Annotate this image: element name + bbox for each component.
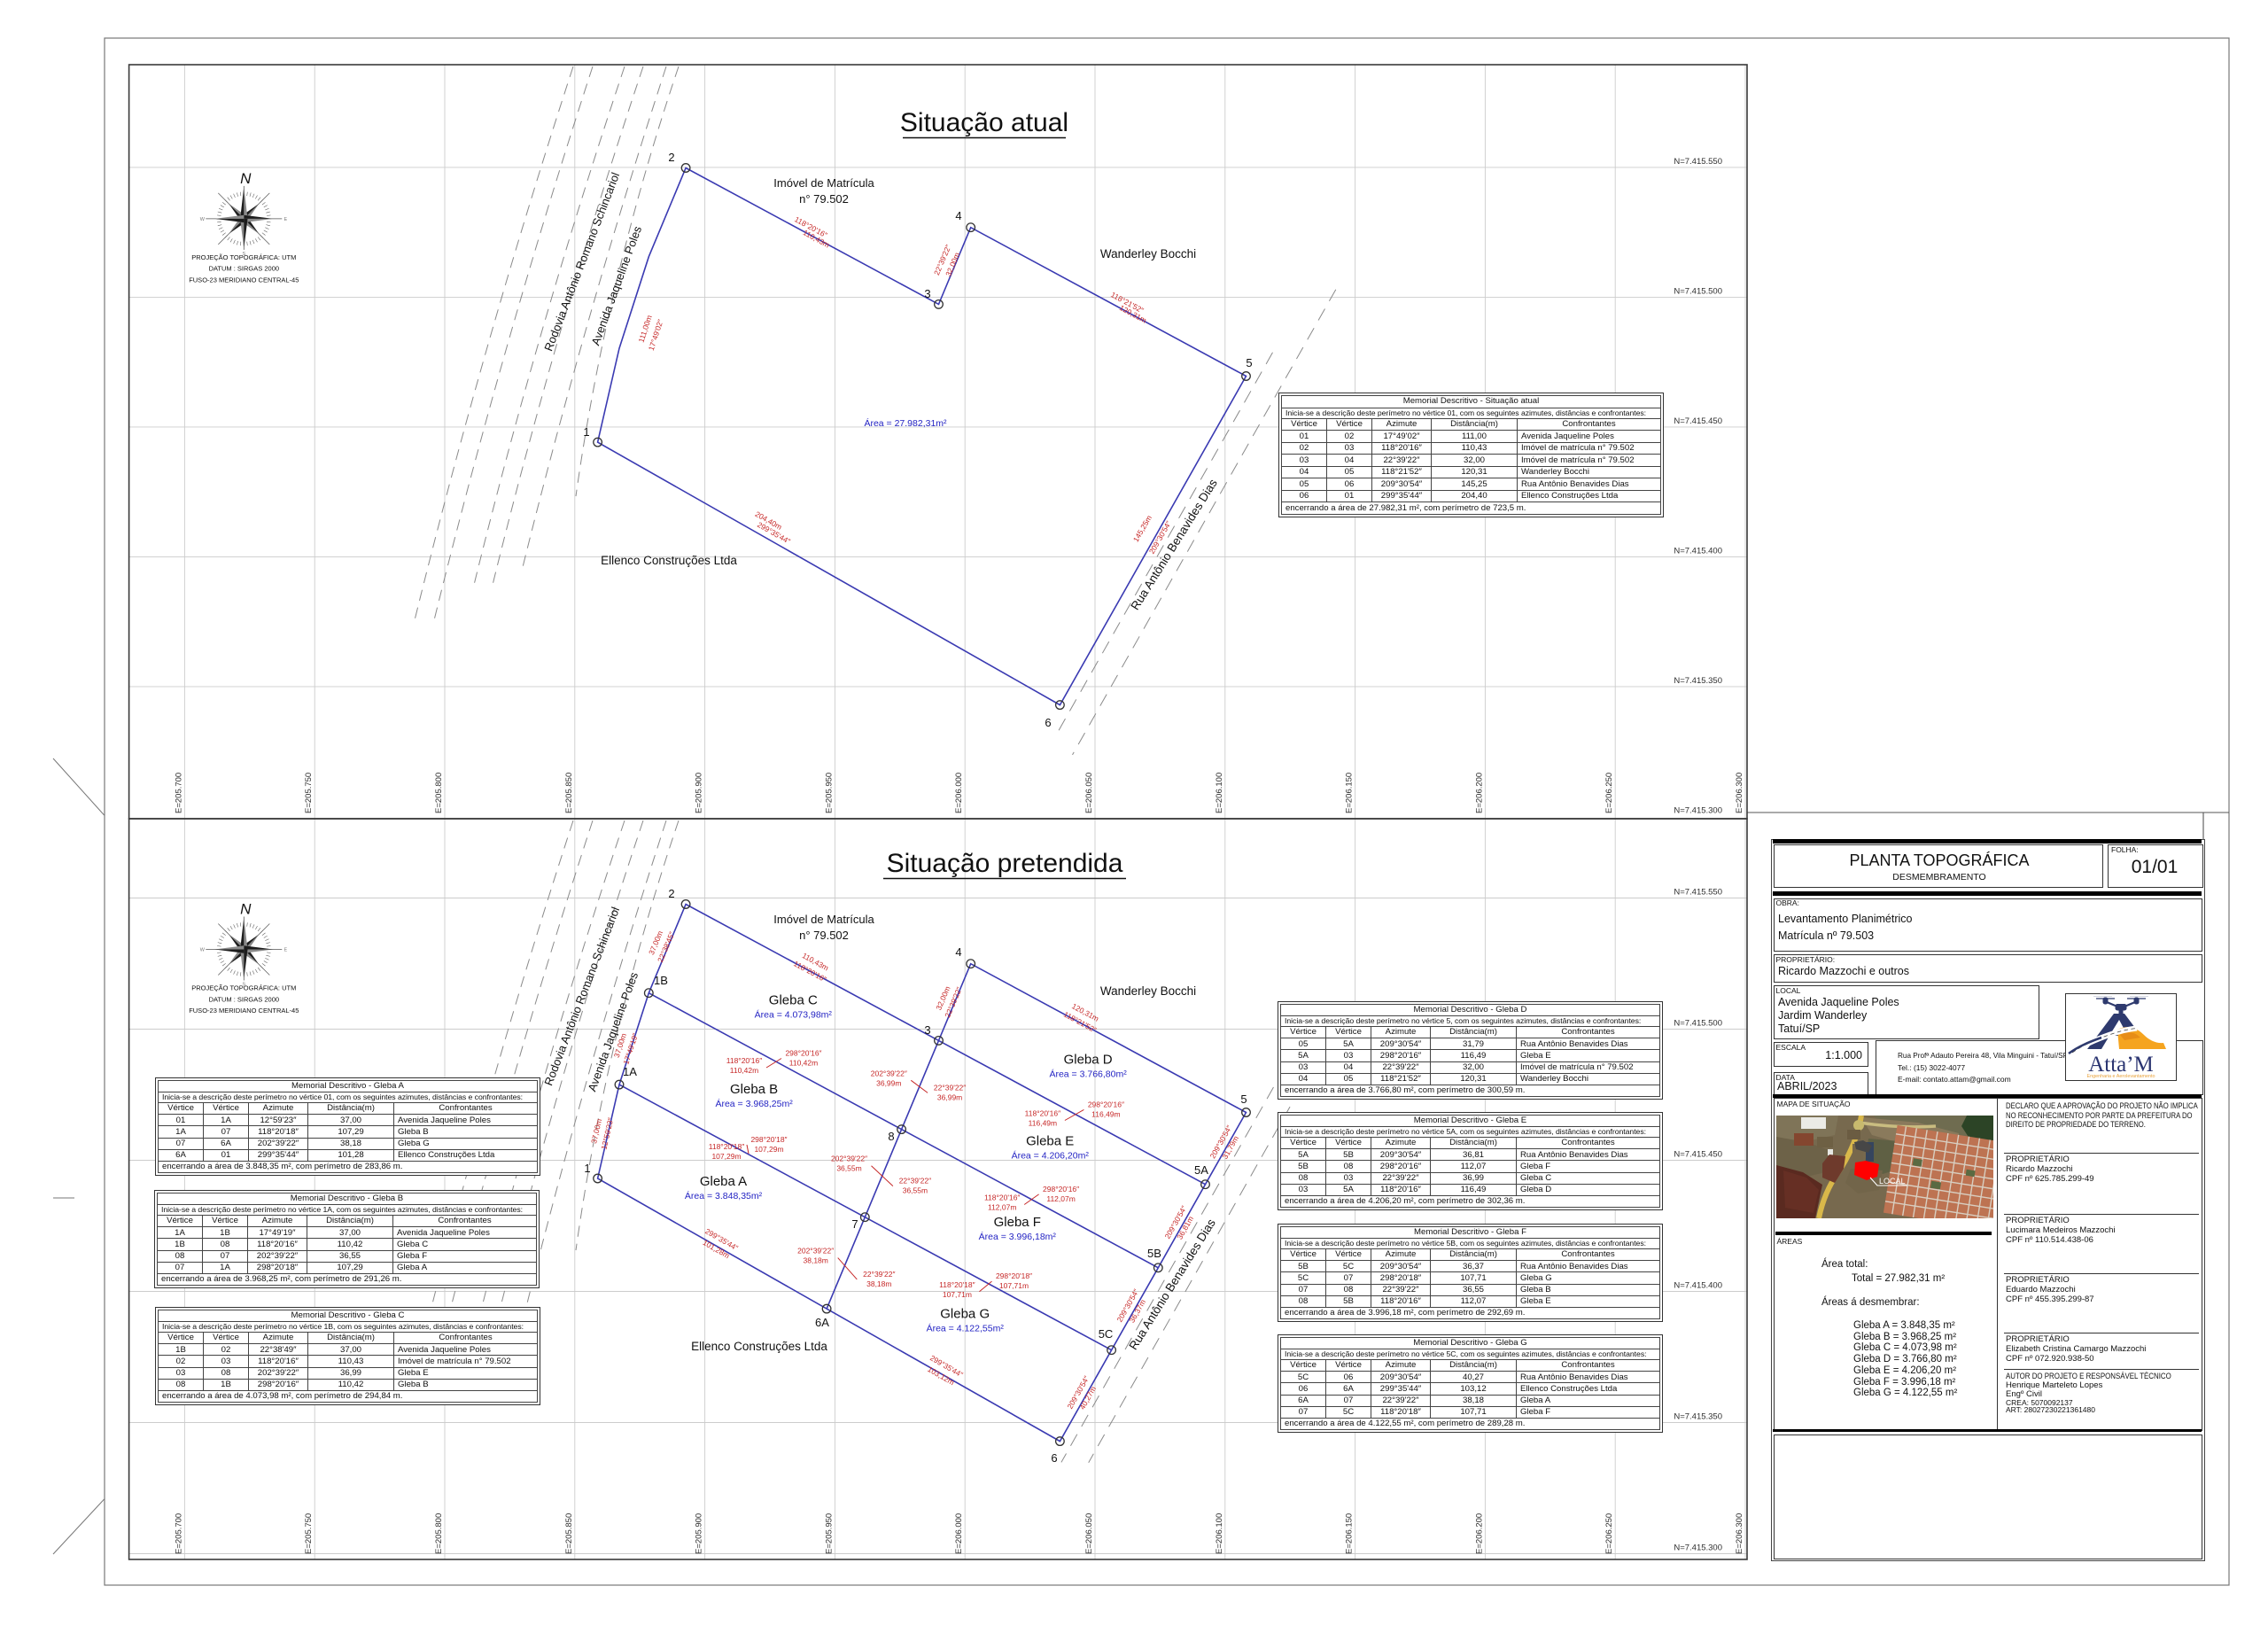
svg-text:118°20'16″: 118°20'16″ <box>1025 1109 1061 1118</box>
svg-text:N=7.415.550: N=7.415.550 <box>1674 157 1722 167</box>
svg-text:N=7.415.350: N=7.415.350 <box>1674 676 1722 686</box>
svg-text:22°39'22″: 22°39'22″ <box>863 1270 895 1279</box>
svg-text:22°39'22″: 22°39'22″ <box>934 1083 966 1092</box>
svg-text:Área = 4.206,20m²: Área = 4.206,20m² <box>1012 1149 1090 1161</box>
svg-text:116,49m: 116,49m <box>1029 1119 1057 1128</box>
svg-text:E=206.050: E=206.050 <box>1084 1513 1094 1554</box>
svg-text:1A: 1A <box>623 1065 637 1078</box>
svg-text:N=7.415.400: N=7.415.400 <box>1674 1281 1722 1291</box>
svg-text:118°20'16″: 118°20'16″ <box>726 1056 763 1065</box>
svg-text:E=206.300: E=206.300 <box>1735 773 1744 813</box>
svg-text:E=205.750: E=205.750 <box>304 773 314 813</box>
svg-text:Rodovia Antônio Romano Schinca: Rodovia Antônio Romano Schincariol <box>541 905 622 1087</box>
svg-text:118°20'16″: 118°20'16″ <box>984 1193 1021 1202</box>
svg-text:E=206.050: E=206.050 <box>1084 773 1094 813</box>
svg-text:36,55m: 36,55m <box>836 1164 861 1173</box>
svg-text:3: 3 <box>924 287 930 300</box>
svg-text:DATUM : SIRGAS 2000: DATUM : SIRGAS 2000 <box>209 995 279 1003</box>
svg-text:W: W <box>200 217 206 222</box>
svg-text:PROJEÇÃO TOPOGRÁFICA: UTM: PROJEÇÃO TOPOGRÁFICA: UTM <box>191 984 296 992</box>
svg-text:38,18m: 38,18m <box>804 1256 828 1265</box>
svg-text:22°39'22″: 22°39'22″ <box>899 1177 931 1186</box>
svg-text:DATUM : SIRGAS 2000: DATUM : SIRGAS 2000 <box>209 265 279 273</box>
svg-text:4: 4 <box>955 945 961 959</box>
svg-text:N=7.415.500: N=7.415.500 <box>1674 1019 1722 1029</box>
svg-text:145,25m: 145,25m <box>1131 514 1153 544</box>
svg-text:Gleba A: Gleba A <box>700 1174 747 1189</box>
svg-text:Engenharia e Aerolevantamento: Engenharia e Aerolevantamento <box>2086 1074 2155 1079</box>
svg-text:E=205.950: E=205.950 <box>824 773 834 813</box>
svg-text:Imóvel de Matrícula: Imóvel de Matrícula <box>773 913 874 926</box>
svg-text:Rua Antônio Benavides Dias: Rua Antônio Benavides Dias <box>1128 477 1220 612</box>
svg-text:298°20'16″: 298°20'16″ <box>785 1049 821 1058</box>
svg-text:5A: 5A <box>1194 1163 1208 1177</box>
svg-text:Ellenco Construções Ltda: Ellenco Construções Ltda <box>601 554 737 567</box>
svg-text:E=205.900: E=205.900 <box>695 773 704 813</box>
svg-text:Imóvel de Matrícula: Imóvel de Matrícula <box>773 176 874 190</box>
svg-text:E=206.200: E=206.200 <box>1474 1513 1484 1554</box>
svg-text:Gleba D: Gleba D <box>1064 1053 1113 1068</box>
svg-text:PROJEÇÃO TOPOGRÁFICA: UTM: PROJEÇÃO TOPOGRÁFICA: UTM <box>191 253 296 261</box>
svg-text:E=205.850: E=205.850 <box>564 1513 574 1554</box>
svg-text:118°20'18″: 118°20'18″ <box>709 1142 745 1151</box>
svg-text:110,42m: 110,42m <box>789 1059 818 1068</box>
svg-text:Área = 3.848,35m²: Área = 3.848,35m² <box>685 1190 763 1201</box>
svg-text:n° 79.502: n° 79.502 <box>799 192 849 206</box>
svg-text:1B: 1B <box>654 974 668 987</box>
svg-text:5B: 5B <box>1147 1247 1161 1260</box>
svg-text:E=206.150: E=206.150 <box>1345 1513 1355 1554</box>
svg-text:7: 7 <box>851 1217 858 1231</box>
svg-text:6: 6 <box>1051 1451 1057 1465</box>
svg-text:Gleba B: Gleba B <box>730 1082 778 1097</box>
svg-text:8: 8 <box>888 1130 894 1143</box>
svg-text:1: 1 <box>584 1162 590 1175</box>
svg-text:36,99m: 36,99m <box>876 1078 901 1087</box>
svg-text:1: 1 <box>583 425 589 439</box>
svg-text:N=7.415.400: N=7.415.400 <box>1674 546 1722 556</box>
svg-text:Wanderley Bocchi: Wanderley Bocchi <box>1100 984 1196 998</box>
svg-text:202°39'22″: 202°39'22″ <box>797 1247 834 1256</box>
svg-text:N=7.415.350: N=7.415.350 <box>1674 1412 1722 1422</box>
svg-text:n° 79.502: n° 79.502 <box>799 929 849 942</box>
svg-text:38,18m: 38,18m <box>866 1279 891 1288</box>
svg-text:N: N <box>240 901 252 918</box>
svg-text:E=206.000: E=206.000 <box>954 773 964 813</box>
svg-text:110,42m: 110,42m <box>730 1066 758 1075</box>
svg-text:Gleba E: Gleba E <box>1026 1133 1074 1148</box>
svg-text:FUSO-23 MERIDIANO CENTRAL-45: FUSO-23 MERIDIANO CENTRAL-45 <box>189 276 299 284</box>
svg-text:E=205.850: E=205.850 <box>564 773 574 813</box>
svg-text:5: 5 <box>1246 356 1252 369</box>
svg-text:Gleba G: Gleba G <box>940 1307 990 1322</box>
svg-text:298°20'16″: 298°20'16″ <box>1088 1100 1124 1108</box>
svg-text:E=205.750: E=205.750 <box>304 1513 314 1554</box>
svg-text:E=206.300: E=206.300 <box>1735 1513 1744 1554</box>
svg-text:N=7.415.550: N=7.415.550 <box>1674 888 1722 898</box>
svg-text:E: E <box>283 217 287 222</box>
svg-text:E=205.800: E=205.800 <box>434 1513 444 1554</box>
svg-text:E: E <box>283 948 287 953</box>
svg-text:2: 2 <box>668 887 674 900</box>
svg-text:Avenida Jaqueline Poles: Avenida Jaqueline Poles <box>588 224 644 347</box>
svg-text:FUSO-23 MERIDIANO CENTRAL-45: FUSO-23 MERIDIANO CENTRAL-45 <box>189 1007 299 1015</box>
svg-text:Situação pretendida: Situação pretendida <box>887 849 1123 878</box>
svg-text:E=206.150: E=206.150 <box>1345 773 1355 813</box>
svg-text:107,29m: 107,29m <box>711 1152 741 1161</box>
svg-text:3: 3 <box>924 1023 930 1037</box>
svg-text:107,71m: 107,71m <box>943 1290 972 1299</box>
svg-text:Ellenco Construções Ltda: Ellenco Construções Ltda <box>691 1340 827 1353</box>
svg-text:N=7.415.450: N=7.415.450 <box>1674 1150 1722 1160</box>
svg-text:N=7.415.500: N=7.415.500 <box>1674 286 1722 296</box>
svg-text:Área = 4.073,98m²: Área = 4.073,98m² <box>755 1009 833 1021</box>
svg-text:Área = 3.996,18m²: Área = 3.996,18m² <box>979 1231 1057 1242</box>
svg-text:E=205.700: E=205.700 <box>174 1513 183 1554</box>
svg-text:2: 2 <box>668 151 674 164</box>
svg-text:Gleba C: Gleba C <box>769 993 818 1008</box>
svg-text:4: 4 <box>955 209 961 222</box>
svg-text:Wanderley Bocchi: Wanderley Bocchi <box>1100 247 1196 260</box>
svg-text:112,07m: 112,07m <box>988 1203 1016 1212</box>
svg-text:E=206.100: E=206.100 <box>1215 773 1224 813</box>
svg-text:Atta’M: Atta’M <box>2088 1053 2154 1077</box>
svg-text:112,07m: 112,07m <box>1046 1194 1075 1203</box>
svg-text:N=7.415.450: N=7.415.450 <box>1674 416 1722 426</box>
svg-text:298°20'18″: 298°20'18″ <box>996 1271 1032 1280</box>
svg-text:Gleba F: Gleba F <box>994 1215 1041 1230</box>
svg-text:Área = 27.982,31m²: Área = 27.982,31m² <box>864 417 947 429</box>
svg-text:5: 5 <box>1240 1092 1247 1106</box>
svg-text:E=205.950: E=205.950 <box>824 1513 834 1554</box>
svg-text:298°20'18″: 298°20'18″ <box>750 1135 787 1144</box>
svg-text:202°39'22″: 202°39'22″ <box>871 1069 907 1077</box>
svg-text:E=206.250: E=206.250 <box>1604 773 1614 813</box>
svg-text:E=206.250: E=206.250 <box>1604 1513 1614 1554</box>
svg-text:E=205.700: E=205.700 <box>174 773 183 813</box>
svg-text:202°39'22″: 202°39'22″ <box>831 1155 867 1163</box>
svg-text:6: 6 <box>1045 716 1051 729</box>
svg-text:Área = 4.122,55m²: Área = 4.122,55m² <box>927 1323 1005 1334</box>
svg-text:36,55m: 36,55m <box>903 1186 928 1195</box>
svg-text:5C: 5C <box>1099 1327 1114 1341</box>
svg-text:E=205.800: E=205.800 <box>434 773 444 813</box>
svg-text:LOCAL: LOCAL <box>1879 1177 1906 1186</box>
svg-text:E=206.000: E=206.000 <box>954 1513 964 1554</box>
svg-text:118°20'18″: 118°20'18″ <box>939 1280 975 1289</box>
svg-text:E=206.100: E=206.100 <box>1215 1513 1224 1554</box>
svg-text:N=7.415.300: N=7.415.300 <box>1674 1543 1722 1553</box>
svg-text:36,99m: 36,99m <box>937 1092 962 1101</box>
svg-text:Situação atual: Situação atual <box>900 108 1068 137</box>
svg-text:E=206.200: E=206.200 <box>1474 773 1484 813</box>
svg-text:298°20'16″: 298°20'16″ <box>1043 1185 1079 1193</box>
svg-text:116,49m: 116,49m <box>1091 1109 1120 1118</box>
svg-text:Área = 3.766,80m²: Área = 3.766,80m² <box>1049 1069 1127 1080</box>
svg-text:Área = 3.968,25m²: Área = 3.968,25m² <box>715 1098 793 1109</box>
svg-text:W: W <box>200 948 206 953</box>
svg-text:6A: 6A <box>815 1316 829 1329</box>
svg-text:N: N <box>240 170 252 187</box>
svg-text:N=7.415.300: N=7.415.300 <box>1674 805 1722 815</box>
svg-text:107,71m: 107,71m <box>999 1281 1029 1290</box>
svg-text:107,29m: 107,29m <box>754 1145 783 1154</box>
svg-text:E=205.900: E=205.900 <box>695 1513 704 1554</box>
